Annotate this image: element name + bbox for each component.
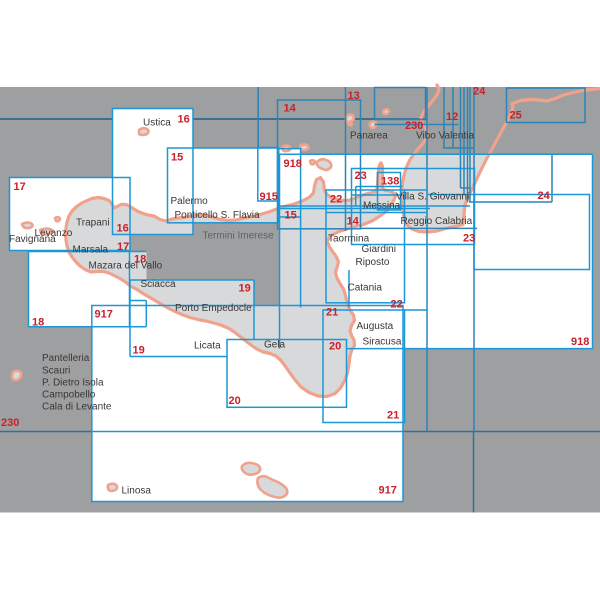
svg-text:13: 13 bbox=[348, 90, 360, 102]
svg-text:Villa S. Giovanni: Villa S. Giovanni bbox=[396, 192, 469, 203]
svg-text:19: 19 bbox=[239, 283, 251, 295]
svg-text:Taormina: Taormina bbox=[328, 234, 370, 245]
svg-text:Messina: Messina bbox=[363, 201, 401, 212]
svg-text:138: 138 bbox=[381, 176, 399, 188]
svg-text:18: 18 bbox=[32, 317, 44, 329]
svg-text:230: 230 bbox=[1, 417, 19, 429]
svg-text:Siracusa: Siracusa bbox=[363, 337, 402, 348]
svg-text:22: 22 bbox=[391, 299, 403, 311]
svg-text:14: 14 bbox=[284, 103, 297, 115]
svg-text:Reggio Calabria: Reggio Calabria bbox=[401, 216, 473, 227]
svg-text:Ustica: Ustica bbox=[143, 118, 171, 129]
svg-text:918: 918 bbox=[571, 336, 589, 348]
svg-text:917: 917 bbox=[379, 485, 397, 497]
svg-text:Riposto: Riposto bbox=[356, 257, 390, 268]
svg-text:Catania: Catania bbox=[348, 283, 383, 294]
svg-text:Gela: Gela bbox=[264, 340, 286, 351]
svg-text:915: 915 bbox=[260, 191, 278, 203]
svg-text:Sciacca: Sciacca bbox=[141, 279, 176, 290]
svg-text:Scauri: Scauri bbox=[42, 366, 70, 377]
svg-text:Favignana: Favignana bbox=[9, 234, 56, 245]
svg-text:Trapani: Trapani bbox=[76, 218, 110, 229]
svg-text:Pantelleria: Pantelleria bbox=[42, 353, 90, 364]
svg-text:Augusta: Augusta bbox=[357, 321, 394, 332]
svg-text:Giardini: Giardini bbox=[362, 244, 396, 255]
svg-text:20: 20 bbox=[329, 341, 341, 353]
svg-text:24: 24 bbox=[538, 190, 551, 202]
svg-text:24: 24 bbox=[473, 86, 486, 98]
svg-text:Panarea: Panarea bbox=[350, 131, 388, 142]
svg-text:17: 17 bbox=[14, 181, 26, 193]
svg-text:14: 14 bbox=[347, 216, 360, 228]
svg-text:16: 16 bbox=[178, 114, 190, 126]
svg-text:Ponticello S. Flavia: Ponticello S. Flavia bbox=[175, 210, 260, 221]
svg-text:Campobello: Campobello bbox=[42, 390, 96, 401]
svg-text:22: 22 bbox=[330, 194, 342, 206]
svg-text:23: 23 bbox=[463, 233, 475, 245]
svg-text:21: 21 bbox=[326, 307, 338, 319]
svg-text:21: 21 bbox=[387, 410, 399, 422]
svg-text:Vibo Valentia: Vibo Valentia bbox=[416, 131, 474, 142]
svg-text:16: 16 bbox=[117, 223, 129, 235]
svg-text:12: 12 bbox=[446, 111, 458, 123]
svg-text:19: 19 bbox=[133, 345, 145, 357]
svg-text:25: 25 bbox=[510, 110, 522, 122]
svg-text:917: 917 bbox=[95, 309, 113, 321]
svg-text:15: 15 bbox=[285, 210, 297, 222]
svg-text:15: 15 bbox=[171, 152, 183, 164]
svg-text:17: 17 bbox=[117, 241, 129, 253]
svg-text:Cala di Levante: Cala di Levante bbox=[42, 402, 112, 413]
svg-text:Marsala: Marsala bbox=[73, 245, 109, 256]
svg-text:Licata: Licata bbox=[194, 341, 221, 352]
svg-text:P. Dietro Isola: P. Dietro Isola bbox=[42, 378, 104, 389]
svg-text:Porto Empedocle: Porto Empedocle bbox=[175, 303, 252, 314]
svg-text:Termini Imerese: Termini Imerese bbox=[203, 231, 275, 242]
svg-text:Linosa: Linosa bbox=[122, 486, 152, 497]
svg-text:23: 23 bbox=[355, 170, 367, 182]
svg-text:Mazara del Vallo: Mazara del Vallo bbox=[89, 261, 163, 272]
svg-text:Palermo: Palermo bbox=[171, 196, 209, 207]
svg-text:918: 918 bbox=[284, 158, 302, 170]
svg-text:20: 20 bbox=[229, 395, 241, 407]
